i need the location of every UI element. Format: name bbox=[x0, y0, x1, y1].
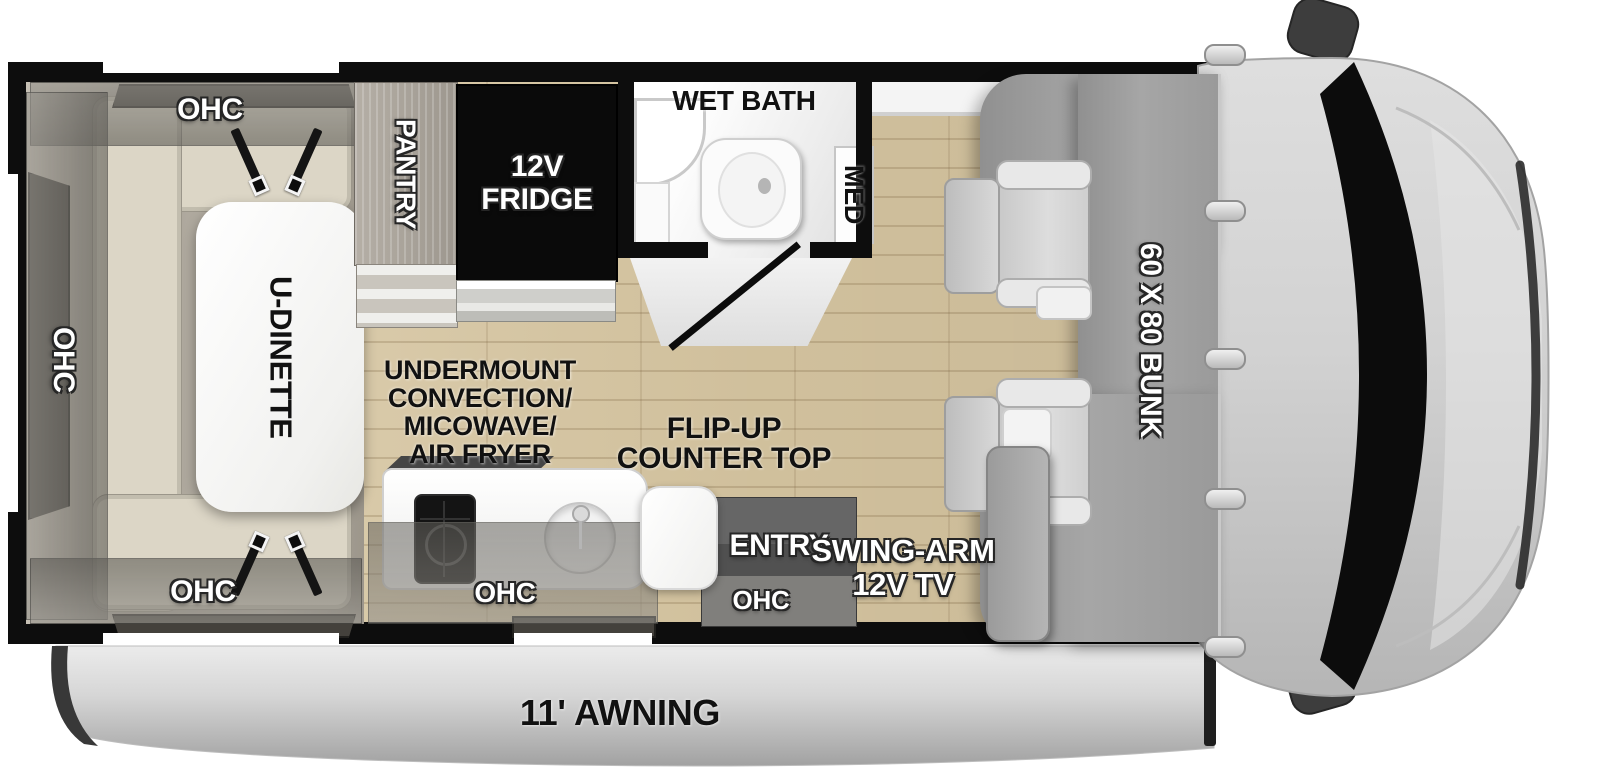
ohc-label: OHC bbox=[150, 94, 270, 126]
pantry-lower-shelves bbox=[356, 264, 458, 328]
fridge-label-line2: FRIDGE bbox=[481, 184, 593, 216]
exterior-window bbox=[103, 62, 339, 73]
bath-wall-bottom-right bbox=[810, 242, 872, 258]
pantry-label: PANTRY bbox=[391, 119, 420, 229]
mount-pin-icon bbox=[1204, 348, 1246, 370]
swing-arm-tv-label: SWING-ARM12V TV bbox=[778, 534, 1028, 602]
toilet-flush bbox=[758, 178, 771, 194]
bunk-label-wrap: 60 X 80 BUNK bbox=[1118, 190, 1182, 490]
ohc-label: OHC bbox=[445, 578, 565, 607]
flip-up-label: FLIP-UPCOUNTER TOP bbox=[574, 414, 874, 474]
wet-bath-label: WET BATH bbox=[634, 86, 854, 115]
bath-bench bbox=[634, 182, 670, 248]
awning-label: 11' AWNING bbox=[460, 694, 780, 732]
exterior-window bbox=[514, 633, 652, 644]
fridge: 12V FRIDGE bbox=[456, 84, 618, 282]
fridge-lower-cabinet bbox=[456, 280, 616, 322]
exterior-window bbox=[103, 633, 339, 644]
med-label: MED bbox=[840, 165, 868, 224]
toilet-icon bbox=[700, 138, 802, 240]
cab-console bbox=[1036, 286, 1092, 320]
seat-armrest bbox=[996, 378, 1092, 408]
u-dinette-label: U-DINETTE bbox=[264, 276, 297, 439]
exterior-window bbox=[8, 174, 18, 512]
seat-armrest bbox=[996, 160, 1092, 190]
pantry-cabinet: PANTRY bbox=[354, 82, 458, 266]
mount-pin-icon bbox=[1204, 44, 1246, 66]
cooktop-grate bbox=[420, 518, 470, 520]
bath-wall-bottom-left bbox=[618, 242, 708, 258]
bunk-label: 60 X 80 BUNK bbox=[1134, 243, 1166, 438]
seat-backrest bbox=[944, 178, 1000, 294]
bath-wall-right bbox=[856, 62, 872, 258]
rv-floorplan: U-DINETTE PANTRY 12V FRIDGE MED WET BATH bbox=[0, 0, 1600, 775]
mirror-icon bbox=[1284, 0, 1363, 66]
ohc-label: OHC bbox=[143, 576, 263, 608]
mount-pin-icon bbox=[1204, 200, 1246, 222]
faucet-stem bbox=[579, 521, 582, 549]
mount-pin-icon bbox=[1204, 636, 1246, 658]
mount-pin-icon bbox=[1204, 488, 1246, 510]
fridge-label-line1: 12V bbox=[511, 151, 563, 183]
cab-seat bbox=[944, 160, 1090, 306]
bath-wall-left bbox=[618, 62, 634, 258]
ohc-label: OHC bbox=[47, 327, 79, 393]
toilet-seat bbox=[718, 152, 786, 228]
ohc-label-wrap: OHC bbox=[38, 298, 88, 422]
